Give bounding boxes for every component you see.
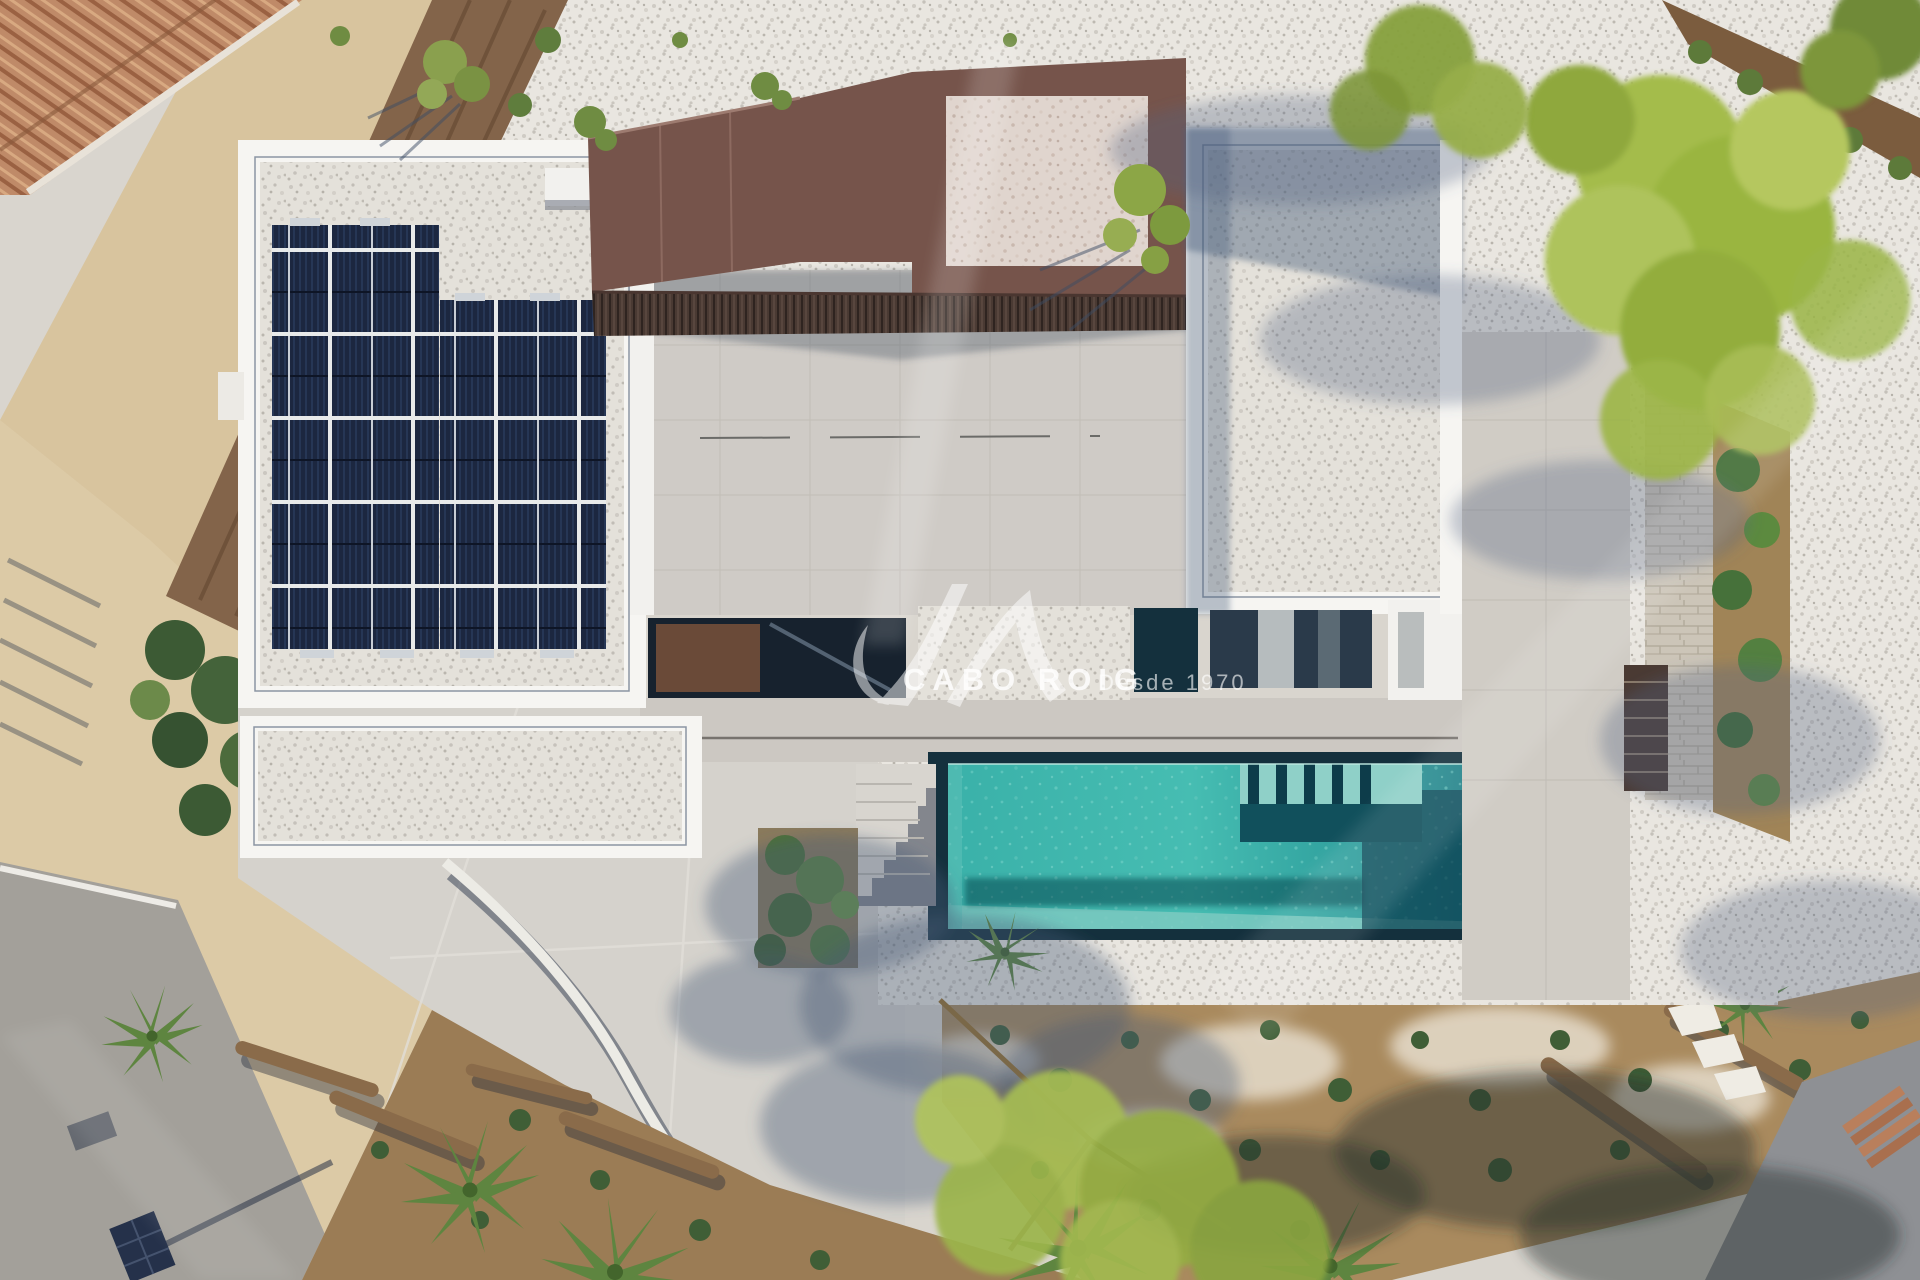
wall-shadow-on-roof	[1186, 128, 1230, 614]
aerial-photo: CABO ROIG Desde 1970	[0, 0, 1920, 1280]
parapet-step-out	[218, 372, 244, 420]
watermark-tagline: Desde 1970	[1098, 670, 1247, 695]
skylight-wood-interior	[656, 624, 760, 692]
band-grey-panel	[1398, 612, 1424, 688]
lower-roof-gravel	[258, 731, 682, 841]
lower-left-roof	[240, 716, 702, 858]
solar-array-left	[272, 225, 439, 649]
skylight-right-reflection	[1258, 610, 1294, 688]
photo-canvas: CABO ROIG Desde 1970	[0, 0, 1920, 1280]
louvered-soffit	[592, 292, 1186, 336]
skylight-right-mullion	[1318, 610, 1340, 688]
rooftop-unit-shadow	[545, 200, 591, 210]
bronze-band-mid	[800, 72, 912, 262]
middle-terrace-band	[238, 588, 1462, 710]
